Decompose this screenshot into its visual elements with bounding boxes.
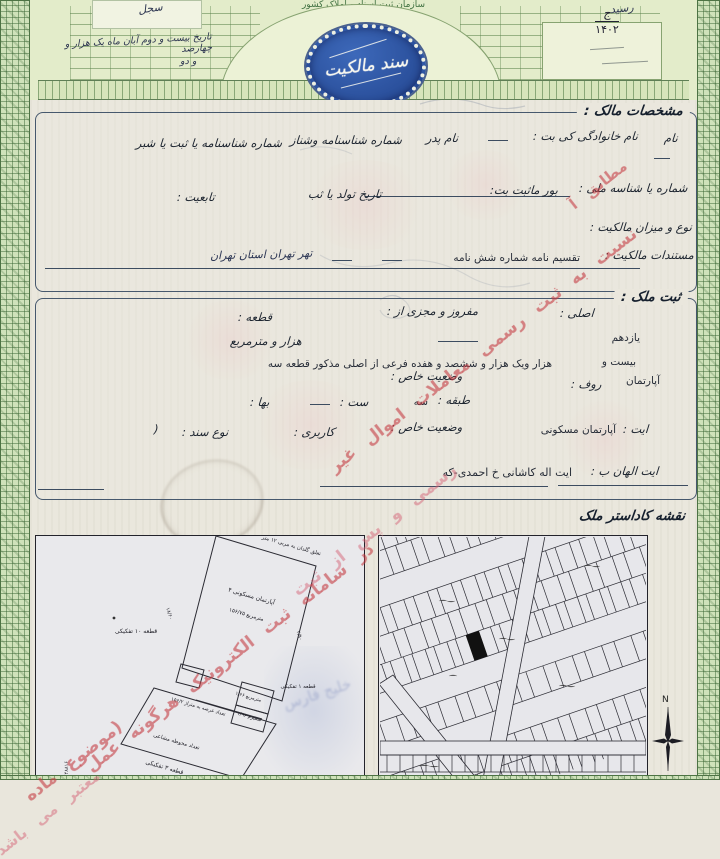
deed-emblem: سند مالکیت (306, 24, 426, 100)
cadastre-section-title: نقشه کاداستر ملک (571, 508, 693, 524)
field-family-name: نام خانوادگی کی بت : (532, 129, 638, 143)
plan-label-small: سمیرم ۱/۹۶ (237, 711, 262, 724)
fill-line (38, 489, 104, 490)
plan-dim-left: ۱۸/۶۰ (164, 607, 173, 621)
compass-star-icon (648, 705, 688, 775)
handwritten-date-line2: و دو (180, 56, 196, 67)
fill-line (45, 268, 640, 269)
field-doc-type: نوع سند : (181, 425, 228, 439)
property-section-title: ثبت ملک : (613, 289, 688, 305)
plan-label-area: مترمربع ۱۵۶/۷۵ (228, 607, 264, 623)
blank-dash (654, 158, 670, 159)
guilloche-border-right (697, 0, 720, 780)
blank-dash (382, 260, 402, 261)
value-sub-plot: بیست و (602, 356, 636, 368)
field-main-plot: اصلی : (560, 306, 595, 320)
field-apartment: آپارتمان (626, 375, 660, 387)
field-id-number-2: شماره شناسنامه یا ثبت یا شبر (135, 136, 282, 150)
serial-divider (595, 21, 619, 22)
field-birth-date: تاریخ تولد یا ثب (308, 187, 383, 201)
field-plot: قطعه : (237, 310, 272, 324)
compass-north-label: N (662, 695, 669, 705)
plan-label-top: تعلق گلدان به مربی ۱۲ متر (260, 536, 322, 557)
field-square-meters: هزار و مترمربع (230, 334, 303, 348)
value-unit-type: آپارتمان مسکونی (541, 424, 616, 436)
plan-dot (113, 617, 116, 620)
value-main-plot: یازدهم (612, 332, 640, 344)
field-father-name: نام پدر (425, 131, 458, 145)
field-usage: کاربری : (294, 425, 336, 439)
value-address: ایت اله کاشانی خ احمدی-که (443, 466, 572, 479)
city-map (379, 536, 647, 779)
field-nationality: تابعیت : (177, 190, 216, 204)
field-ait: ایت : (622, 422, 648, 436)
plan-dim-right: ۴/۹۰ (295, 630, 304, 641)
docs-handwritten-city: تهر تهران استان تهران (209, 247, 312, 263)
bottom-street (380, 741, 646, 755)
field-name: نام (664, 131, 679, 145)
plan-label-shared-yard: تعداد محوطه مشاعی (153, 733, 201, 752)
deed-header: سازمان ثبت اسناد و املاک کشور سجل تاریخ … (30, 0, 697, 100)
plan-label-terrace: مترمربع ۱/۶۶ (235, 690, 263, 703)
field-roof: روف : (571, 377, 603, 391)
property-deed-scan: { "header": { "org_title": "سازمان ثبت ا… (0, 0, 720, 780)
docs-value: تقسیم نامه شماره شش نامه (453, 252, 580, 264)
field-separated-from: مفروز و مجزی از : (386, 304, 478, 318)
fill-line (558, 485, 688, 486)
field-address-label: ایت الهان ب : (590, 464, 658, 478)
guilloche-border-left (0, 0, 30, 780)
serial-year: ۱۴۰۲ (595, 23, 619, 36)
guilloche-border-bottom (0, 775, 720, 780)
bottom-parcel-row (380, 755, 646, 772)
blue-wash (264, 646, 364, 776)
subject-parcel (466, 631, 488, 661)
paren-mark: ( (153, 422, 158, 436)
diagonal-street (379, 675, 477, 779)
city-map-box (378, 535, 648, 780)
owner-section-title: مشخصات مالک : (576, 103, 691, 119)
handwritten-receipt: رسید (609, 1, 634, 16)
compass-rose: N (648, 695, 688, 775)
plan-label-plot10: قطعه ۱۰ تفکیکی (115, 628, 157, 635)
field-id-number-1: شماره شناسنامه وشناز (290, 133, 403, 147)
field-price: بها : (250, 395, 271, 409)
field-ownership-type: نوع و میزان مالکیت : (590, 220, 693, 234)
blank-dash (310, 404, 330, 405)
field-area: ست : (339, 395, 368, 409)
plan-label-apartment: آپارتمان مسکونی ۴ (227, 585, 276, 607)
blank-dash (488, 140, 508, 141)
field-registered: بور ماثبت بت: (489, 183, 558, 197)
blank-dash (332, 260, 352, 261)
plan-label-plot3: قطعه ۳ تفکیکی (145, 759, 185, 777)
fill-line (438, 341, 478, 342)
